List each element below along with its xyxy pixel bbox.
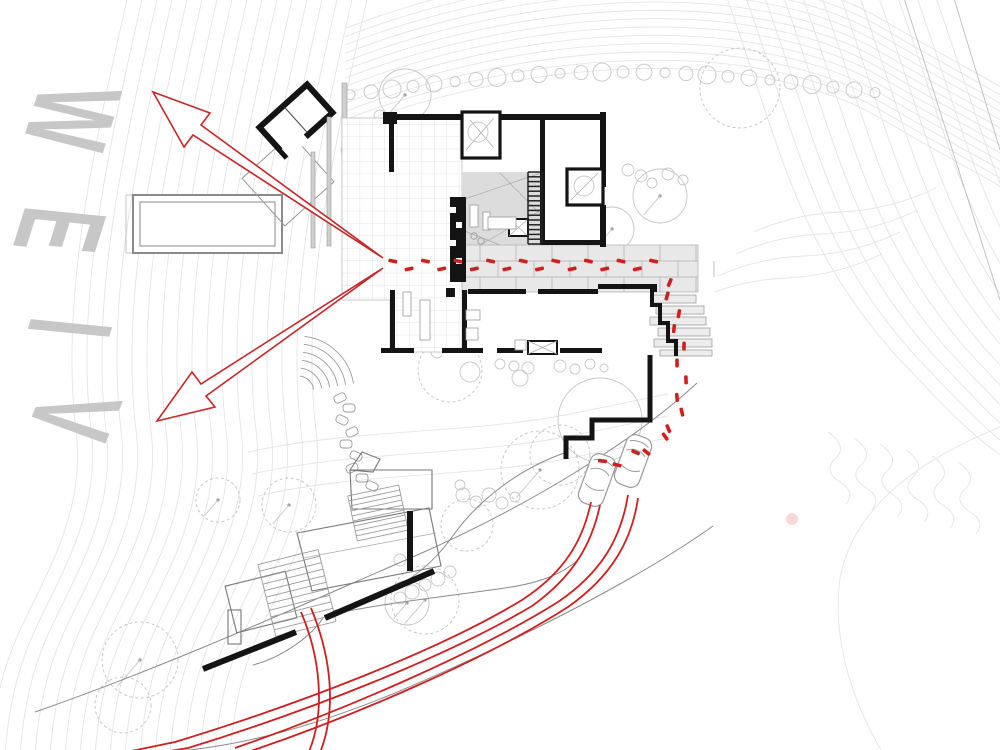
courtyard-b bbox=[567, 169, 603, 205]
site-plan-drawing: W E I V bbox=[0, 0, 1000, 750]
car-1 bbox=[576, 451, 618, 509]
car-2 bbox=[612, 432, 654, 490]
driveway-tracks bbox=[88, 495, 638, 750]
site-plan-page: W E I V bbox=[0, 0, 1000, 750]
paving-band bbox=[462, 245, 698, 292]
view-letter-e: E bbox=[0, 201, 133, 258]
guest-stair-upper bbox=[348, 485, 408, 541]
view-letter-v: V bbox=[0, 387, 149, 448]
main-house bbox=[342, 112, 715, 459]
courtyard-a bbox=[462, 112, 500, 158]
guest-stair-lower bbox=[258, 550, 336, 637]
site-marker bbox=[786, 513, 798, 525]
view-text: W E I V bbox=[0, 80, 149, 447]
x-table bbox=[528, 341, 557, 354]
view-letter-w: W bbox=[0, 80, 148, 156]
pool bbox=[126, 195, 282, 253]
